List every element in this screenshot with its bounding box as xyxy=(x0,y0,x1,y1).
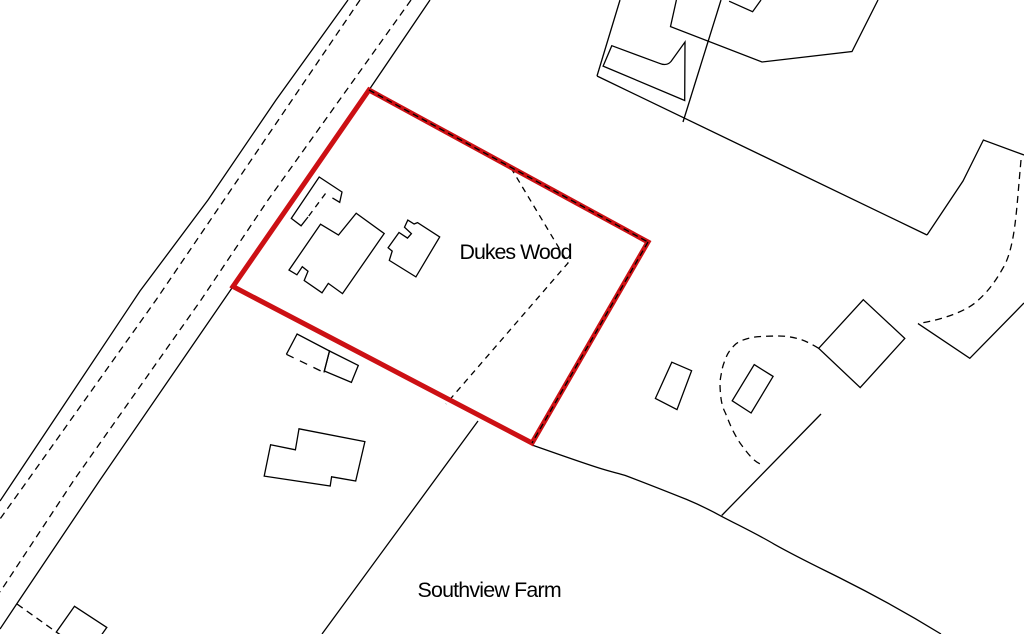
svg-text:Dukes Wood: Dukes Wood xyxy=(460,240,572,264)
svg-text:Southview Farm: Southview Farm xyxy=(418,578,561,602)
